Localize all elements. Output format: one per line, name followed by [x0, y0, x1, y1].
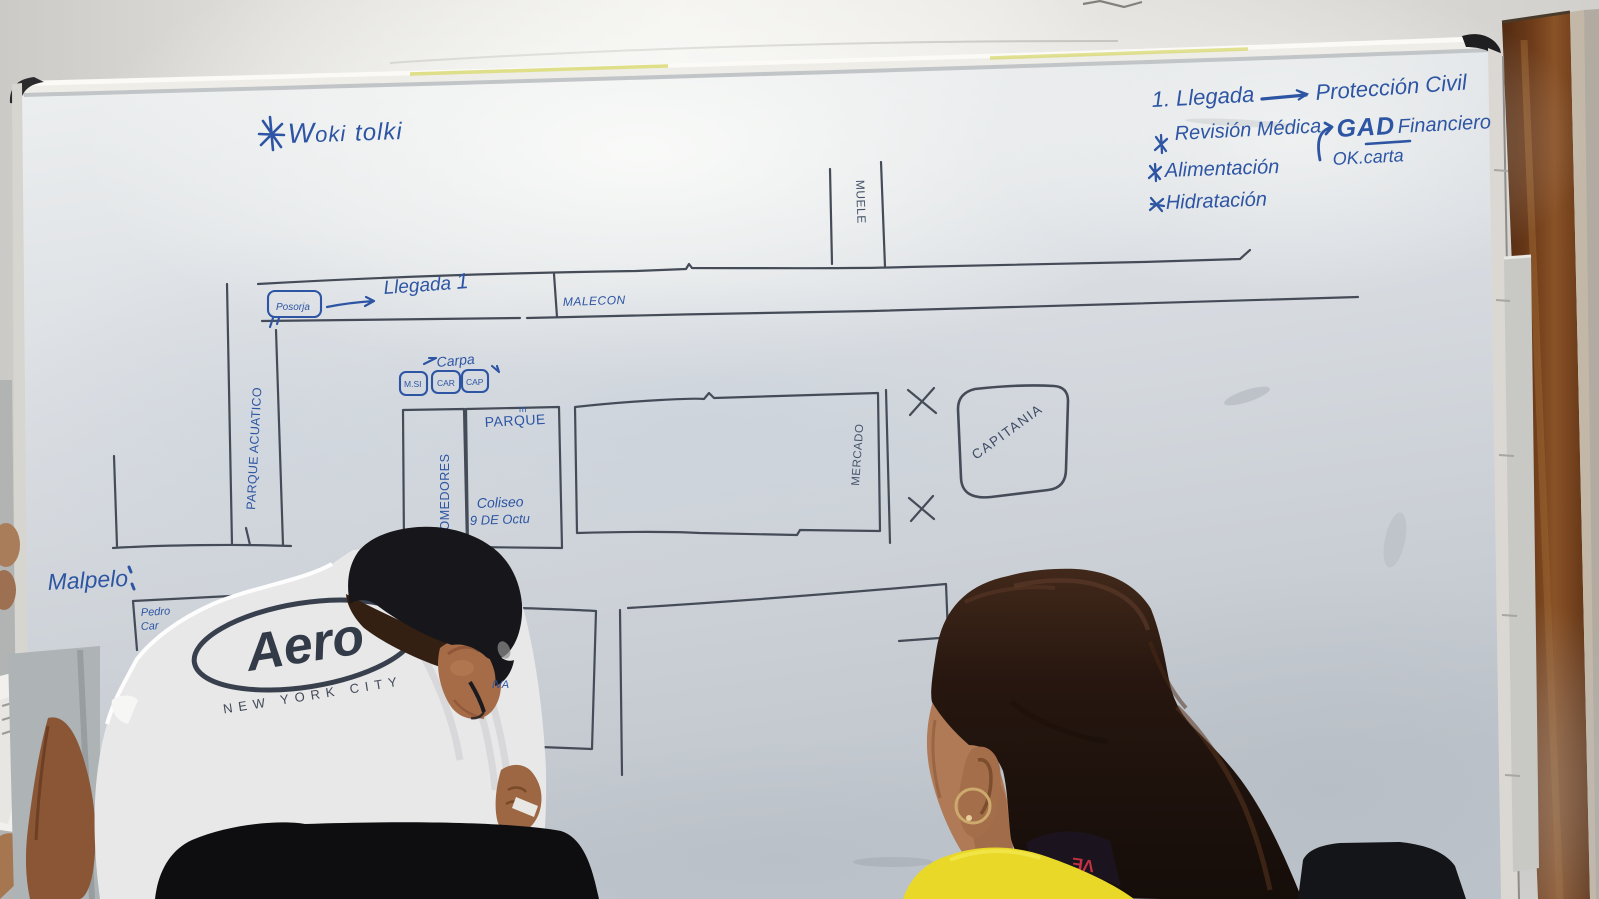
svg-text:Woki tolki: Woki tolki	[287, 114, 403, 149]
svg-text:Alimentación: Alimentación	[1163, 156, 1279, 182]
svg-text:Car: Car	[141, 620, 161, 633]
svg-text:Malpelo: Malpelo	[47, 565, 129, 595]
svg-text:Carpa: Carpa	[436, 351, 476, 370]
svg-text:Posorja: Posorja	[276, 302, 310, 313]
svg-text:CAR: CAR	[437, 378, 455, 388]
svg-text:MALECON: MALECON	[563, 293, 626, 309]
svg-text:CAP: CAP	[466, 377, 484, 387]
svg-text:PARQUE: PARQUE	[484, 411, 546, 430]
svg-text:GAD: GAD	[1336, 112, 1396, 143]
svg-text:OK.carta: OK.carta	[1332, 145, 1404, 169]
svg-text:m: m	[519, 404, 527, 414]
svg-text:Coliseo: Coliseo	[477, 493, 524, 511]
svg-text:IVA: IVA	[492, 679, 509, 691]
svg-text:COMEDORES: COMEDORES	[438, 454, 452, 540]
svg-text:9 DE Octu: 9 DE Octu	[470, 511, 530, 528]
svg-text:Pedro: Pedro	[141, 605, 171, 619]
svg-text:Hidratación: Hidratación	[1165, 188, 1267, 214]
svg-text:MUELE: MUELE	[853, 180, 869, 224]
svg-text:M.SI: M.SI	[404, 379, 421, 389]
